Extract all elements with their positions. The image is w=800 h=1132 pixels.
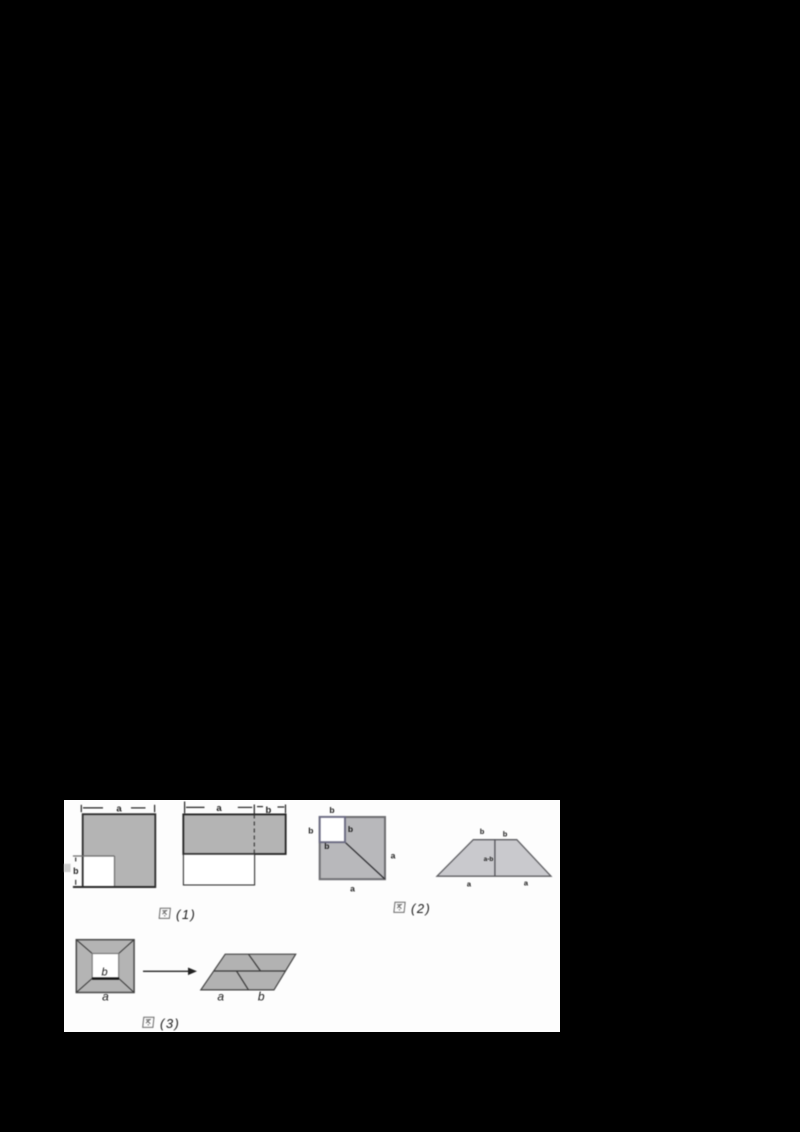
svg-text:(1): (1) [176, 907, 196, 922]
svg-text:a: a [467, 880, 472, 889]
svg-text:b: b [329, 805, 334, 815]
svg-text:b: b [258, 990, 265, 1004]
svg-text:b: b [101, 967, 107, 979]
svg-text:(3): (3) [160, 1016, 180, 1031]
svg-text:a: a [391, 851, 396, 861]
svg-text:a: a [116, 803, 122, 814]
svg-text:a-b: a-b [484, 856, 494, 863]
svg-text:a: a [524, 879, 529, 888]
svg-text:b: b [503, 830, 508, 839]
svg-text:b: b [308, 826, 313, 836]
svg-text:b: b [348, 824, 353, 834]
svg-text:(2): (2) [411, 901, 431, 916]
svg-text:a: a [216, 803, 222, 814]
svg-text:b: b [480, 827, 485, 836]
svg-text:a: a [350, 884, 355, 894]
svg-text:b: b [73, 866, 79, 876]
svg-text:b: b [324, 841, 329, 851]
svg-text:a: a [102, 990, 109, 1004]
svg-text:a: a [217, 990, 224, 1004]
